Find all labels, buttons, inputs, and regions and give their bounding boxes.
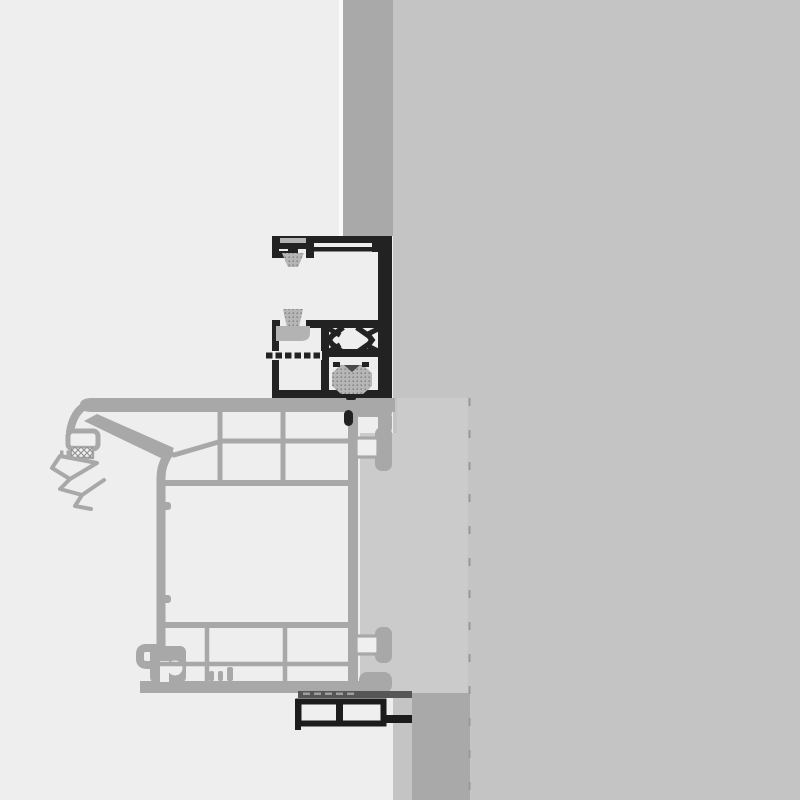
rail-right-leg	[378, 236, 392, 398]
drawing-canvas	[0, 0, 800, 800]
clip-arm-bl	[331, 346, 338, 350]
frame-anchor-t-lower-stem	[356, 636, 378, 654]
frame-rib-3	[227, 667, 233, 681]
sill-profile-divider	[336, 701, 343, 723]
rail-divider-wall	[321, 320, 329, 398]
brush-seal-mid-holder	[276, 326, 310, 341]
wall-band-below-sill	[412, 693, 470, 800]
wall-edge-seam	[339, 0, 343, 236]
foam-gasket-nub-left	[333, 362, 340, 367]
frame-screw-boss-2	[160, 595, 171, 603]
compression-gasket-hatch	[71, 447, 93, 458]
rail-mid-bar-right	[306, 320, 392, 328]
wall-edge-strip	[343, 0, 393, 236]
section-drawing	[0, 0, 800, 800]
frame-anchor-t-upper-stem	[356, 438, 378, 457]
sill-profile-flange	[384, 715, 412, 723]
rail-slot-stub	[306, 242, 314, 258]
rail-slot-lip	[314, 247, 376, 252]
frame-rib-2	[218, 671, 223, 681]
frame-screw-boss-1	[160, 502, 171, 510]
foam-gasket-nub-right	[362, 362, 369, 367]
brush-seal-top-cap	[280, 238, 306, 243]
gasket-pin-lower	[344, 410, 353, 426]
clip-arm-tl	[331, 330, 338, 334]
frame-anchor-lug-bottom	[359, 672, 392, 693]
frame-top-bar	[80, 398, 395, 412]
frame-rib-1	[209, 671, 214, 681]
rail-bottom-bar	[272, 390, 392, 398]
sill-profile-left-tail	[295, 699, 301, 730]
rail-dash-row-bg	[264, 351, 322, 360]
